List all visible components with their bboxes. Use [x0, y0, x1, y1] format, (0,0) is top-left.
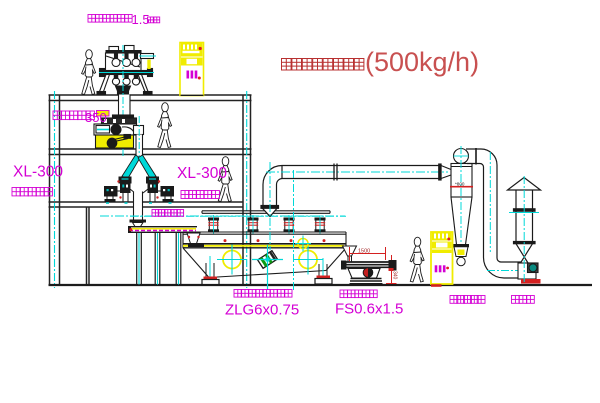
- svg-text:1500: 1500: [358, 249, 370, 255]
- svg-text:*800: *800: [455, 182, 465, 187]
- svg-text:XL-300: XL-300: [177, 165, 227, 182]
- svg-text:XL-300: XL-300: [13, 164, 63, 181]
- svg-text:(500kg/h): (500kg/h): [365, 47, 479, 77]
- svg-text:FS0.6x1.5: FS0.6x1.5: [335, 301, 403, 318]
- svg-text:350: 350: [85, 110, 107, 125]
- svg-text:340: 340: [392, 271, 398, 280]
- svg-text:1.5: 1.5: [132, 12, 150, 27]
- svg-text:ZLG6x0.75: ZLG6x0.75: [225, 302, 299, 319]
